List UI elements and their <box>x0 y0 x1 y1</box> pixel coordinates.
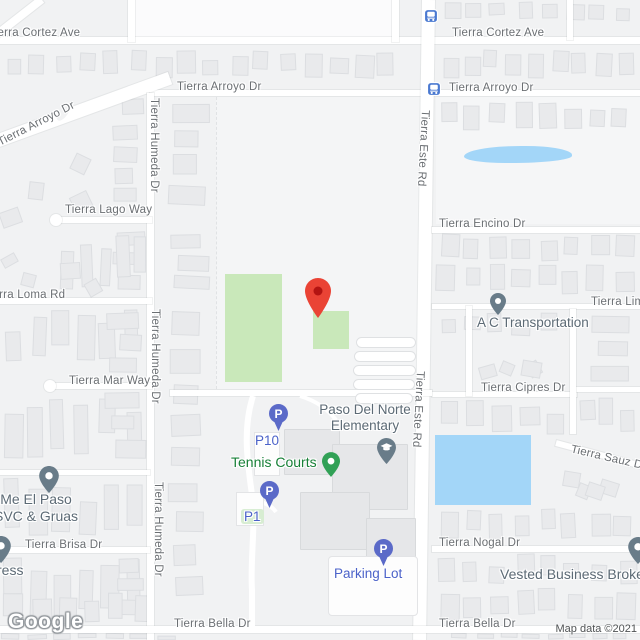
map-canvas[interactable]: Tierra Cortez Ave Tierra Cortez Ave Tier… <box>0 0 640 640</box>
svg-text:P: P <box>379 542 387 556</box>
parking-row <box>354 351 416 362</box>
poi-label-p10[interactable]: P10 <box>255 433 279 448</box>
parking-row <box>353 379 415 390</box>
street-label-cipres: Tierra Cipres Dr <box>481 382 566 394</box>
poi-label-p1[interactable]: P1 <box>241 509 264 524</box>
poi-label-tennis-courts[interactable]: Tennis Courts <box>231 454 317 470</box>
svg-text:P: P <box>265 484 273 498</box>
google-logo[interactable]: Google <box>8 610 83 634</box>
map-attribution: Map data ©2021 <box>556 623 638 635</box>
school-label-line1: Paso Del Norte <box>300 402 430 418</box>
street-label-cortez-right: Tierra Cortez Ave <box>452 27 544 39</box>
tennis-pin-icon[interactable] <box>322 451 340 478</box>
parking-pin-p10-icon[interactable]: P <box>269 404 288 431</box>
poi-label-ac-transportation[interactable]: A C Transportation <box>477 315 589 330</box>
street-label-arroyo-top: Tierra Arroyo Dr <box>177 81 262 93</box>
poi-label-ress[interactable]: ress <box>0 562 23 578</box>
poi-pin-ac-icon[interactable] <box>490 293 506 315</box>
poi-label-school[interactable]: Paso Del Norte Elementary <box>300 402 430 433</box>
poi-pin-me-el-paso-icon[interactable] <box>39 466 59 493</box>
street-label-bella-left: Tierra Bella Dr <box>174 618 251 630</box>
poi-pin-ress-icon[interactable] <box>0 536 11 563</box>
street-label-cortez-left: Tierra Cortez Ave <box>0 27 80 39</box>
parking-lot-area <box>328 556 418 616</box>
svg-text:P: P <box>274 407 282 421</box>
school-pin-icon[interactable] <box>377 438 396 464</box>
street-label-lago: Tierra Lago Way <box>65 204 152 216</box>
street-label-bella-right: Tierra Bella Dr <box>439 618 516 630</box>
parking-row <box>353 365 416 376</box>
street-label-loma: Tierra Loma Rd <box>0 289 65 301</box>
street-label-mar: Tierra Mar Way <box>69 375 150 387</box>
poi-pin-vested-icon[interactable] <box>628 537 640 564</box>
bus-stop-icon[interactable] <box>427 82 441 96</box>
parking-row <box>356 337 416 348</box>
poi-label-parking-lot[interactable]: Parking Lot <box>334 566 402 581</box>
p1-pill: P1 <box>241 509 264 524</box>
destination-pin-icon[interactable] <box>305 278 331 318</box>
poi-label-me-el-paso[interactable]: Me El Paso SVC & Gruas <box>0 491 78 525</box>
me-el-paso-line1: Me El Paso <box>0 491 78 508</box>
school-building <box>300 492 370 550</box>
street-label-nogal: Tierra Nogal Dr <box>439 537 520 549</box>
school-label-line2: Elementary <box>300 418 430 434</box>
street-label-encino: Tierra Encino Dr <box>439 218 526 230</box>
street-label-arroyo-right: Tierra Arroyo Dr <box>449 82 534 94</box>
bus-stop-icon[interactable] <box>424 9 438 23</box>
street-label-lim: Tierra Lim <box>591 296 640 308</box>
parking-pin-p1-icon[interactable]: P <box>260 481 279 508</box>
street-label-humeda-2: Tierra Humeda Dr <box>149 309 161 404</box>
street-label-humeda-3: Tierra Humeda Dr <box>152 482 164 577</box>
poi-label-vested[interactable]: Vested Business Broke <box>500 566 640 582</box>
street-label-brisa: Tierra Brisa Dr <box>25 539 102 551</box>
street-label-humeda-1: Tierra Humeda Dr <box>148 98 160 193</box>
me-el-paso-line2: SVC & Gruas <box>0 508 78 525</box>
parking-pin-lot-icon[interactable]: P <box>374 539 393 566</box>
